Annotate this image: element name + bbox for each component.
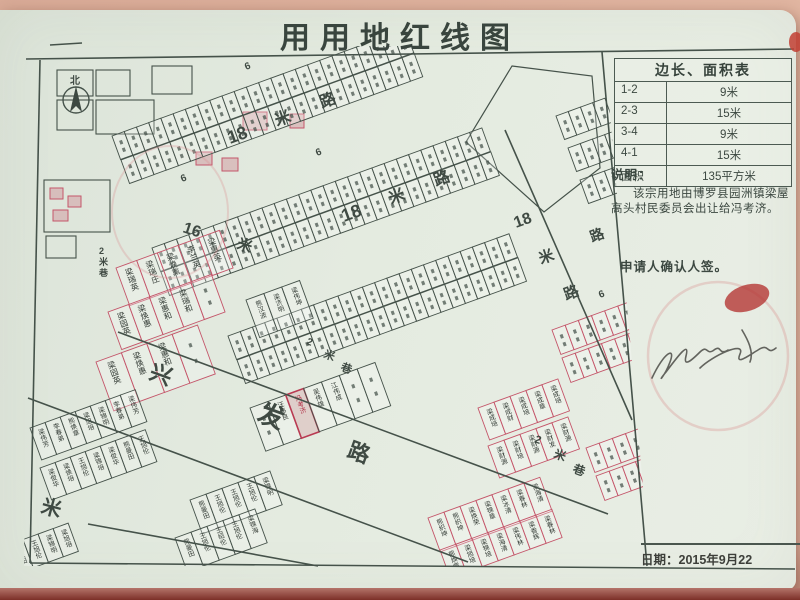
dimension-value: 9米 (667, 82, 791, 102)
dimension-table-row: 4-115米 (615, 145, 791, 166)
plot-strip (556, 98, 613, 139)
dimension-table-row: 2-315米 (615, 103, 791, 124)
dimension-value: 15米 (667, 145, 791, 165)
photo-background-edge (0, 588, 800, 600)
road-label: 米 (98, 256, 109, 267)
road-label: 米 (536, 245, 557, 267)
dimension-side-label: 1-2 (615, 82, 667, 102)
road-label: 米 (39, 495, 65, 523)
road-label: 2 (99, 246, 104, 256)
handwritten-signature (652, 330, 776, 378)
road-label: 18 (512, 210, 535, 232)
dimension-table-row: 1-29米 (615, 82, 791, 103)
dimension-table-row: 3-49米 (615, 124, 791, 145)
red-thumbprint (721, 279, 773, 318)
road-label: 路 (344, 437, 374, 468)
road-label: 米 (8, 272, 22, 287)
note-body: 该宗用地由博罗县园洲镇梁屋高头村民委员会出让给冯考济。 (611, 187, 793, 217)
road-label: 巷 (570, 460, 588, 479)
road-label: 6 (314, 146, 323, 158)
dimension-side-label: 4-1 (615, 145, 667, 165)
date-line: 日期：2015年9月22 (641, 543, 800, 568)
road-label: 6 (243, 60, 252, 72)
road-label: 路 (588, 225, 608, 245)
dimension-side-label: 2-3 (615, 103, 667, 123)
dimension-value: 15米 (667, 103, 791, 123)
dimension-value: 9米 (667, 124, 791, 144)
road-label: 6 (597, 288, 606, 300)
applicant-line: 申请人确认人签。 (620, 256, 800, 275)
dimension-table-header: 边长、面积表 (615, 59, 791, 82)
road-label: 6 (179, 172, 188, 184)
road-label: 北 (70, 74, 80, 87)
note-block: 说明： 该宗用地由博罗县园洲镇梁屋高头村民委员会出让给冯考济。 (611, 168, 793, 217)
note-label: 说明： (611, 168, 652, 182)
plot-strip: 熊曼田王旭伦梁锦明梁旭培 (8, 523, 78, 573)
page-title: 用用地红线图 (0, 13, 800, 57)
dimension-side-label: 3-4 (615, 124, 667, 144)
map-frame-line (30, 60, 40, 563)
road-label: 巷 (98, 267, 109, 278)
